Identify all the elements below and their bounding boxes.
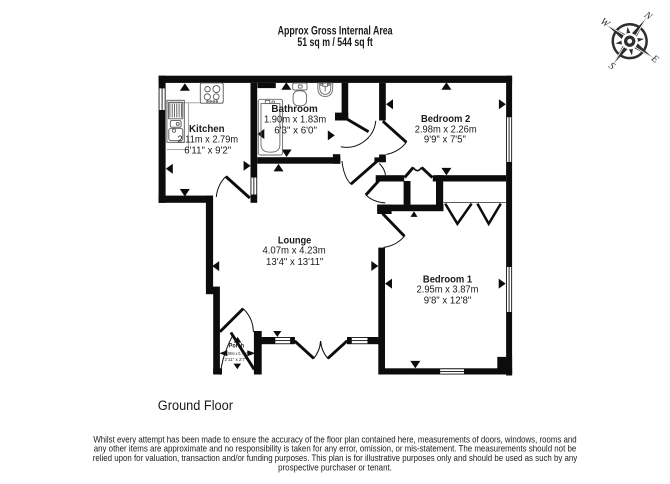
- svg-text:4.07m x 4.23m: 4.07m x 4.23m: [262, 246, 325, 257]
- svg-text:9'9" x 7'5": 9'9" x 7'5": [424, 135, 467, 146]
- svg-text:13'4" x 13'11": 13'4" x 13'11": [266, 257, 324, 268]
- svg-text:2'11" x 2'7": 2'11" x 2'7": [225, 357, 247, 362]
- svg-text:Kitchen: Kitchen: [189, 124, 225, 135]
- svg-text:51 sq m / 544 sq ft: 51 sq m / 544 sq ft: [297, 37, 373, 49]
- svg-text:2.95m x 3.87m: 2.95m x 3.87m: [417, 285, 479, 296]
- svg-text:Bedroom 1: Bedroom 1: [423, 274, 473, 285]
- svg-text:Porch: Porch: [229, 343, 244, 350]
- svg-text:6'3" x 6'0": 6'3" x 6'0": [274, 126, 317, 137]
- svg-text:Approx Gross Internal Area: Approx Gross Internal Area: [278, 26, 393, 38]
- svg-text:9'8" x 12'8": 9'8" x 12'8": [424, 296, 472, 307]
- svg-text:2.11m x 2.79m: 2.11m x 2.79m: [178, 135, 239, 146]
- svg-text:Ground Floor: Ground Floor: [158, 398, 234, 413]
- svg-text:1.90m x 1.83m: 1.90m x 1.83m: [264, 114, 326, 125]
- svg-text:prospective purchaser or tenan: prospective purchaser or tenant.: [278, 462, 392, 473]
- svg-text:0.89m x 0.79m: 0.89m x 0.79m: [225, 351, 248, 356]
- svg-text:6'11" x 9'2": 6'11" x 9'2": [184, 146, 232, 157]
